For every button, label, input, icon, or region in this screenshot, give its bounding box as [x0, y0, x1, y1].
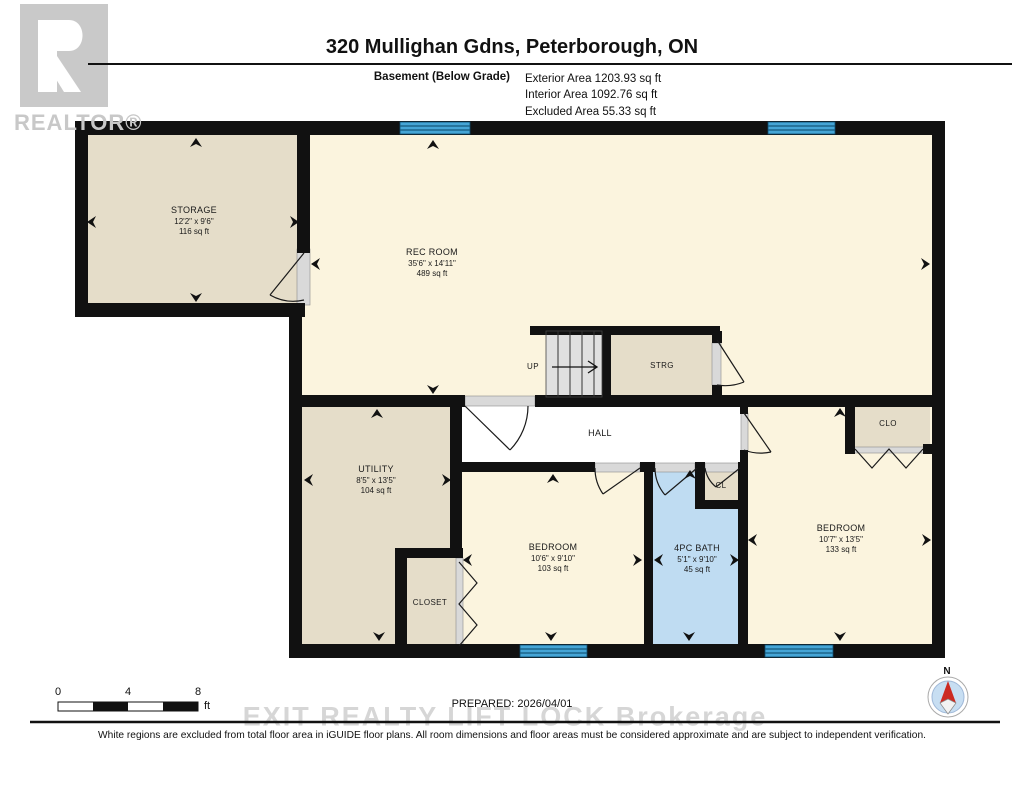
page-title: 320 Mullighan Gdns, Peterborough, ON	[0, 36, 1024, 59]
room-label-rec-room: REC ROOM 35'6" x 14'11" 489 sq ft	[406, 247, 458, 279]
stairs-up-label: UP	[527, 362, 539, 372]
room-label-bath: 4PC BATH 5'1" x 9'10" 45 sq ft	[674, 543, 720, 575]
excluded-area-line: Excluded Area 55.33 sq ft	[525, 104, 661, 120]
room-label-storage: STORAGE 12'2" x 9'6" 116 sq ft	[171, 205, 217, 237]
window-top-left	[400, 122, 470, 134]
interior-area-line: Interior Area 1092.76 sq ft	[525, 87, 661, 103]
compass-north-label: N	[943, 666, 950, 677]
scale-tick-4: 4	[125, 686, 131, 698]
room-label-utility: UTILITY 8'5" x 13'5" 104 sq ft	[356, 464, 395, 496]
room-label-closet: CLOSET	[413, 598, 447, 608]
room-label-strg: STRG	[650, 361, 674, 371]
scale-tick-8: 8	[195, 686, 201, 698]
room-label-clo: CLO	[879, 419, 897, 429]
window-bottom-bedroom	[520, 645, 587, 657]
realtor-watermark-label: REALTOR®	[14, 110, 143, 136]
disclaimer-text: White regions are excluded from total fl…	[0, 730, 1024, 741]
exterior-area-line: Exterior Area 1203.93 sq ft	[525, 71, 661, 87]
prepared-date: PREPARED: 2026/04/01	[362, 698, 662, 710]
room-label-bedroom-mid: BEDROOM 10'6" x 9'10" 103 sq ft	[529, 542, 578, 574]
area-summary: Exterior Area 1203.93 sq ft Interior Are…	[525, 71, 661, 120]
scale-unit-label: ft	[204, 700, 210, 712]
window-bottom-bedroom-right	[765, 645, 833, 657]
scale-bar	[58, 702, 198, 711]
room-label-cl: CL	[715, 481, 726, 491]
room-label-hall: HALL	[588, 428, 612, 440]
scale-tick-0: 0	[55, 686, 61, 698]
floor-label: Basement (Below Grade)	[230, 71, 510, 83]
room-label-bedroom-right: BEDROOM 10'7" x 13'5" 133 sq ft	[817, 523, 866, 555]
window-top-right	[768, 122, 835, 134]
floor-plan-graphic	[0, 0, 1024, 791]
compass-icon	[928, 677, 968, 717]
